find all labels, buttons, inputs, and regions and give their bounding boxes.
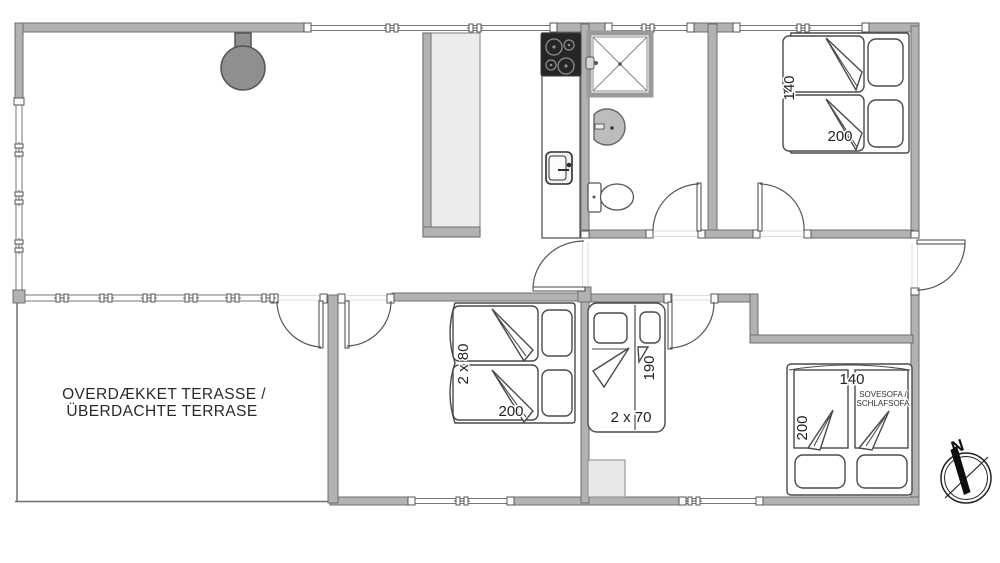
cabinet bbox=[588, 460, 625, 497]
bed-width-label: 2 x 70 bbox=[611, 409, 652, 426]
pillow bbox=[542, 370, 572, 416]
bunk-room-door bbox=[668, 302, 714, 349]
partition-cabinet bbox=[423, 33, 480, 237]
shower-icon bbox=[586, 33, 651, 95]
bedroom1-door bbox=[758, 183, 804, 231]
kitchen bbox=[541, 33, 581, 238]
wood-stove-icon bbox=[221, 33, 265, 90]
pillow bbox=[857, 455, 907, 488]
terrace-door-right bbox=[345, 301, 391, 348]
sofa-label-line1: SOVESOFA / bbox=[859, 390, 907, 399]
bed-width-label: 140 bbox=[839, 371, 864, 388]
bed-length-label: 190 bbox=[641, 355, 658, 380]
pillow bbox=[795, 455, 845, 488]
cooktop-icon bbox=[541, 33, 581, 76]
terrace-label-line2: ÜBERDACHTE TERRASE bbox=[66, 402, 257, 420]
toilet-icon bbox=[588, 183, 634, 212]
compass-north-label: N bbox=[949, 435, 967, 457]
terrace-door-left bbox=[277, 301, 323, 348]
pillow bbox=[594, 313, 627, 343]
floor-plan-drawing: 140 200 2 x 80 200 190 2 x 70 bbox=[0, 0, 1000, 563]
compass-icon: N bbox=[941, 435, 991, 503]
entrance-door bbox=[917, 240, 965, 290]
bed-length-label: 200 bbox=[794, 415, 811, 440]
bed-length-label: 200 bbox=[498, 403, 523, 420]
hallway-door bbox=[533, 241, 585, 291]
kitchen-sink-icon bbox=[546, 152, 572, 184]
bed-length-label: 200 bbox=[827, 128, 852, 145]
pillow bbox=[868, 100, 903, 147]
beds-bunk-room: 190 2 x 70 bbox=[588, 303, 665, 432]
pillow bbox=[640, 312, 660, 343]
floor-plan-canvas: 140 200 2 x 80 200 190 2 x 70 bbox=[0, 0, 1000, 563]
washbasin-icon bbox=[594, 109, 625, 145]
bed-width-label: 2 x 80 bbox=[455, 344, 472, 385]
bed-double-top-right: 140 200 bbox=[781, 33, 909, 153]
bathroom-door bbox=[653, 183, 701, 231]
sofa-label-line2: SCHLAFSOFA bbox=[857, 399, 911, 408]
terrace-label: OVERDÆKKET TERASSE / ÜBERDACHTE TERRASE bbox=[62, 386, 266, 420]
window-symbols bbox=[15, 24, 811, 505]
terrace-label-line1: OVERDÆKKET TERASSE / bbox=[62, 386, 266, 403]
bed-width-label: 140 bbox=[781, 75, 798, 100]
beds-twin-bottom-left: 2 x 80 200 bbox=[450, 303, 575, 423]
pillow bbox=[868, 39, 903, 86]
door-thresholds bbox=[278, 231, 918, 300]
bathroom bbox=[586, 33, 651, 212]
pillow bbox=[542, 310, 572, 356]
sofa-bed: 140 SOVESOFA / SCHLAFSOFA 200 bbox=[787, 364, 912, 495]
